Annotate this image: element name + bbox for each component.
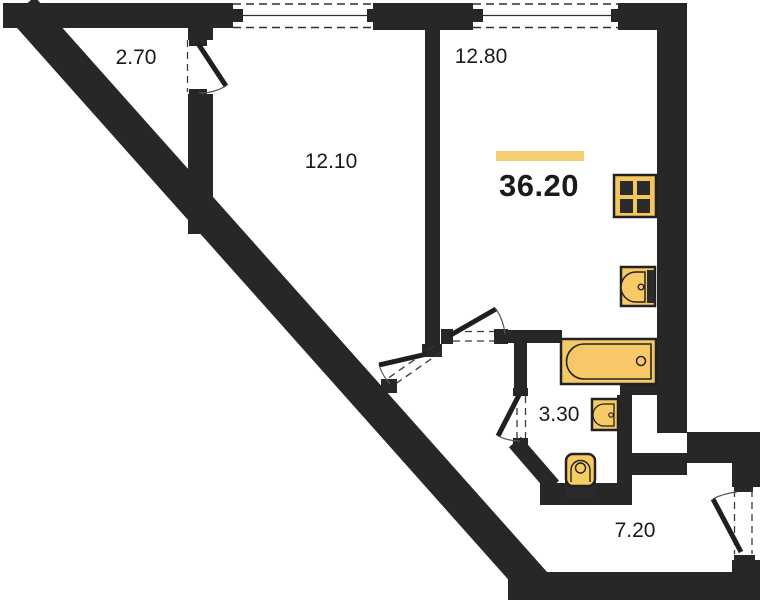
bathroom-diagonal-wall bbox=[515, 442, 553, 486]
room-label-kitchen-living: 12.80 bbox=[455, 45, 508, 69]
floor-plan: 2.70 12.10 12.80 36.20 3.30 7.20 bbox=[0, 0, 760, 600]
bathtub-icon bbox=[561, 339, 656, 384]
door-swing-icon bbox=[449, 309, 505, 341]
total-area-highlight bbox=[496, 151, 584, 161]
washbasin-icon bbox=[592, 399, 618, 430]
window-icon bbox=[230, 4, 380, 28]
toilet-icon bbox=[565, 454, 596, 498]
room-label-bathroom: 3.30 bbox=[539, 403, 580, 427]
room-label-hallway: 7.20 bbox=[615, 519, 656, 543]
stove-icon bbox=[614, 175, 656, 217]
total-area-label: 36.20 bbox=[499, 168, 579, 204]
door-swing-icon bbox=[188, 40, 227, 93]
door-swing-icon bbox=[379, 346, 441, 385]
kitchen-sink-icon bbox=[621, 267, 655, 306]
diagonal-wall bbox=[22, 8, 535, 584]
plan-graphics bbox=[0, 0, 760, 600]
entry-door-swing-icon bbox=[713, 490, 752, 554]
room-label-bedroom: 12.10 bbox=[305, 150, 358, 174]
door-swing-icon bbox=[498, 395, 526, 441]
room-label-balcony: 2.70 bbox=[116, 46, 157, 70]
window-icon bbox=[470, 4, 624, 28]
